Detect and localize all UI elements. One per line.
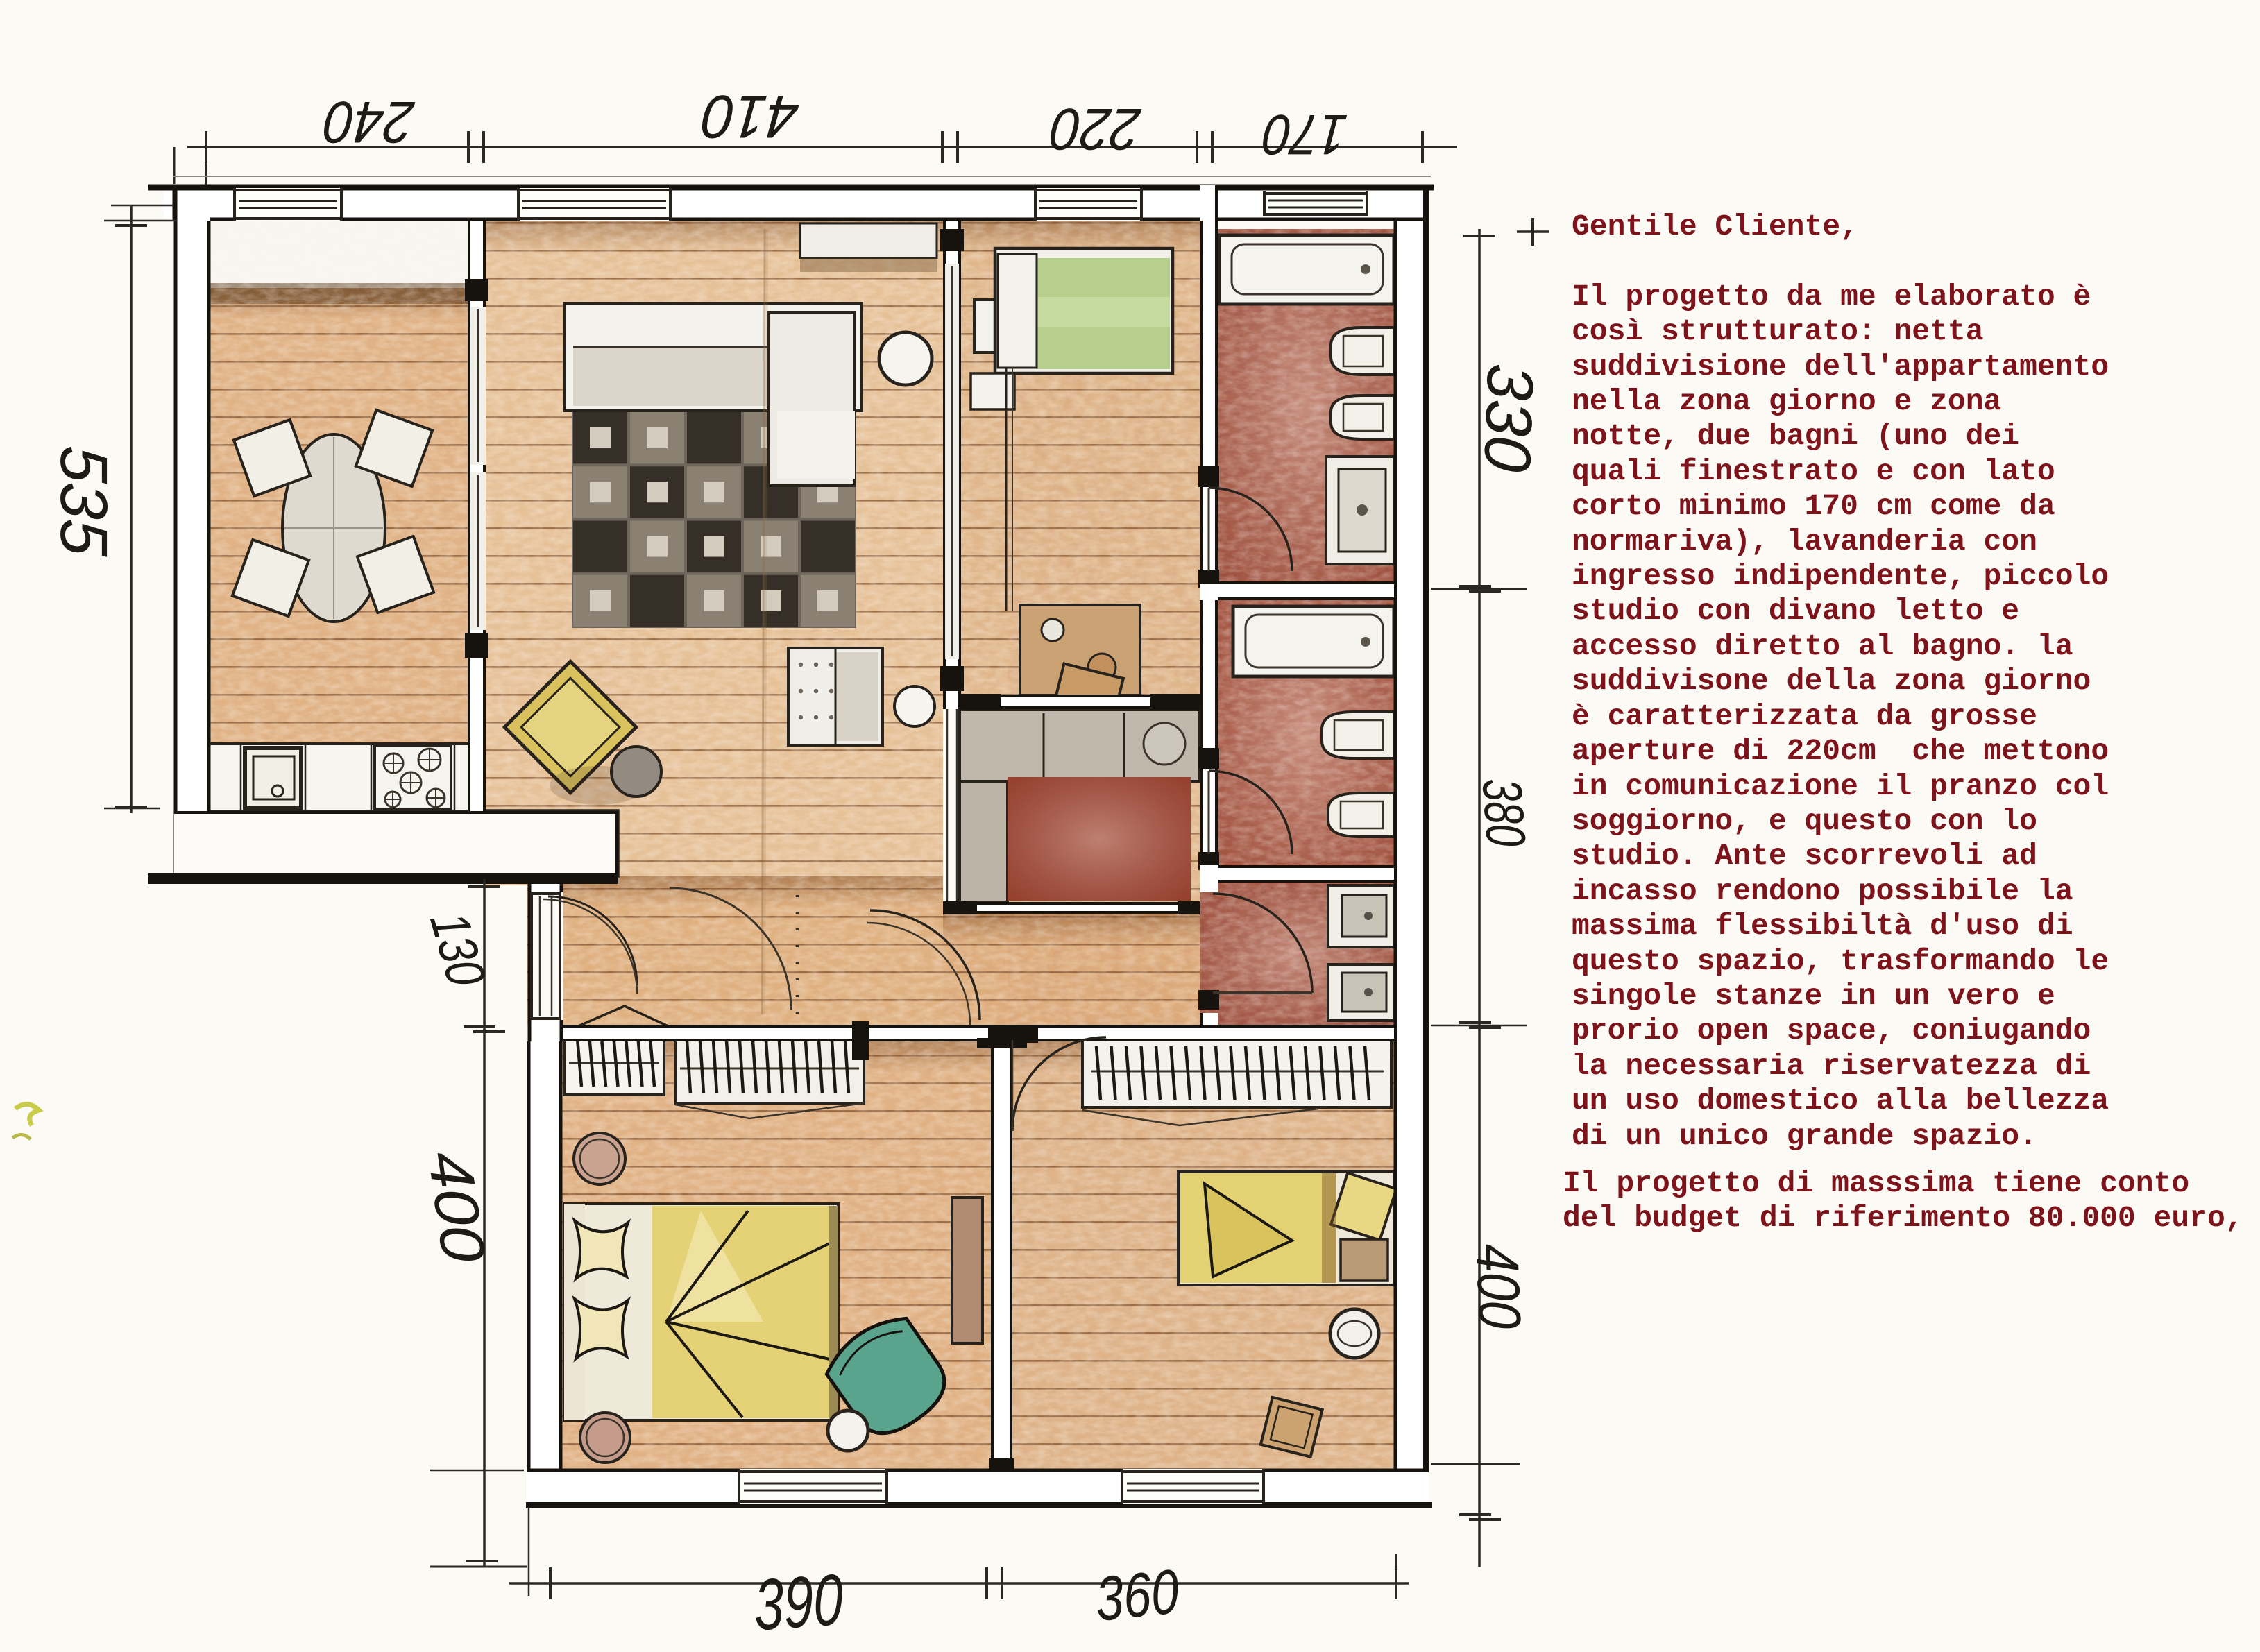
svg-text:220: 220 (1048, 96, 1143, 162)
svg-text:535: 535 (46, 444, 121, 558)
svg-text:170: 170 (1261, 103, 1350, 166)
svg-text:410: 410 (699, 83, 801, 151)
svg-text:380: 380 (1471, 778, 1538, 848)
svg-text:400: 400 (1463, 1244, 1533, 1329)
svg-text:360: 360 (1094, 1557, 1181, 1635)
svg-text:240: 240 (321, 89, 416, 155)
svg-text:330: 330 (1470, 361, 1547, 474)
svg-text:390: 390 (753, 1560, 844, 1646)
